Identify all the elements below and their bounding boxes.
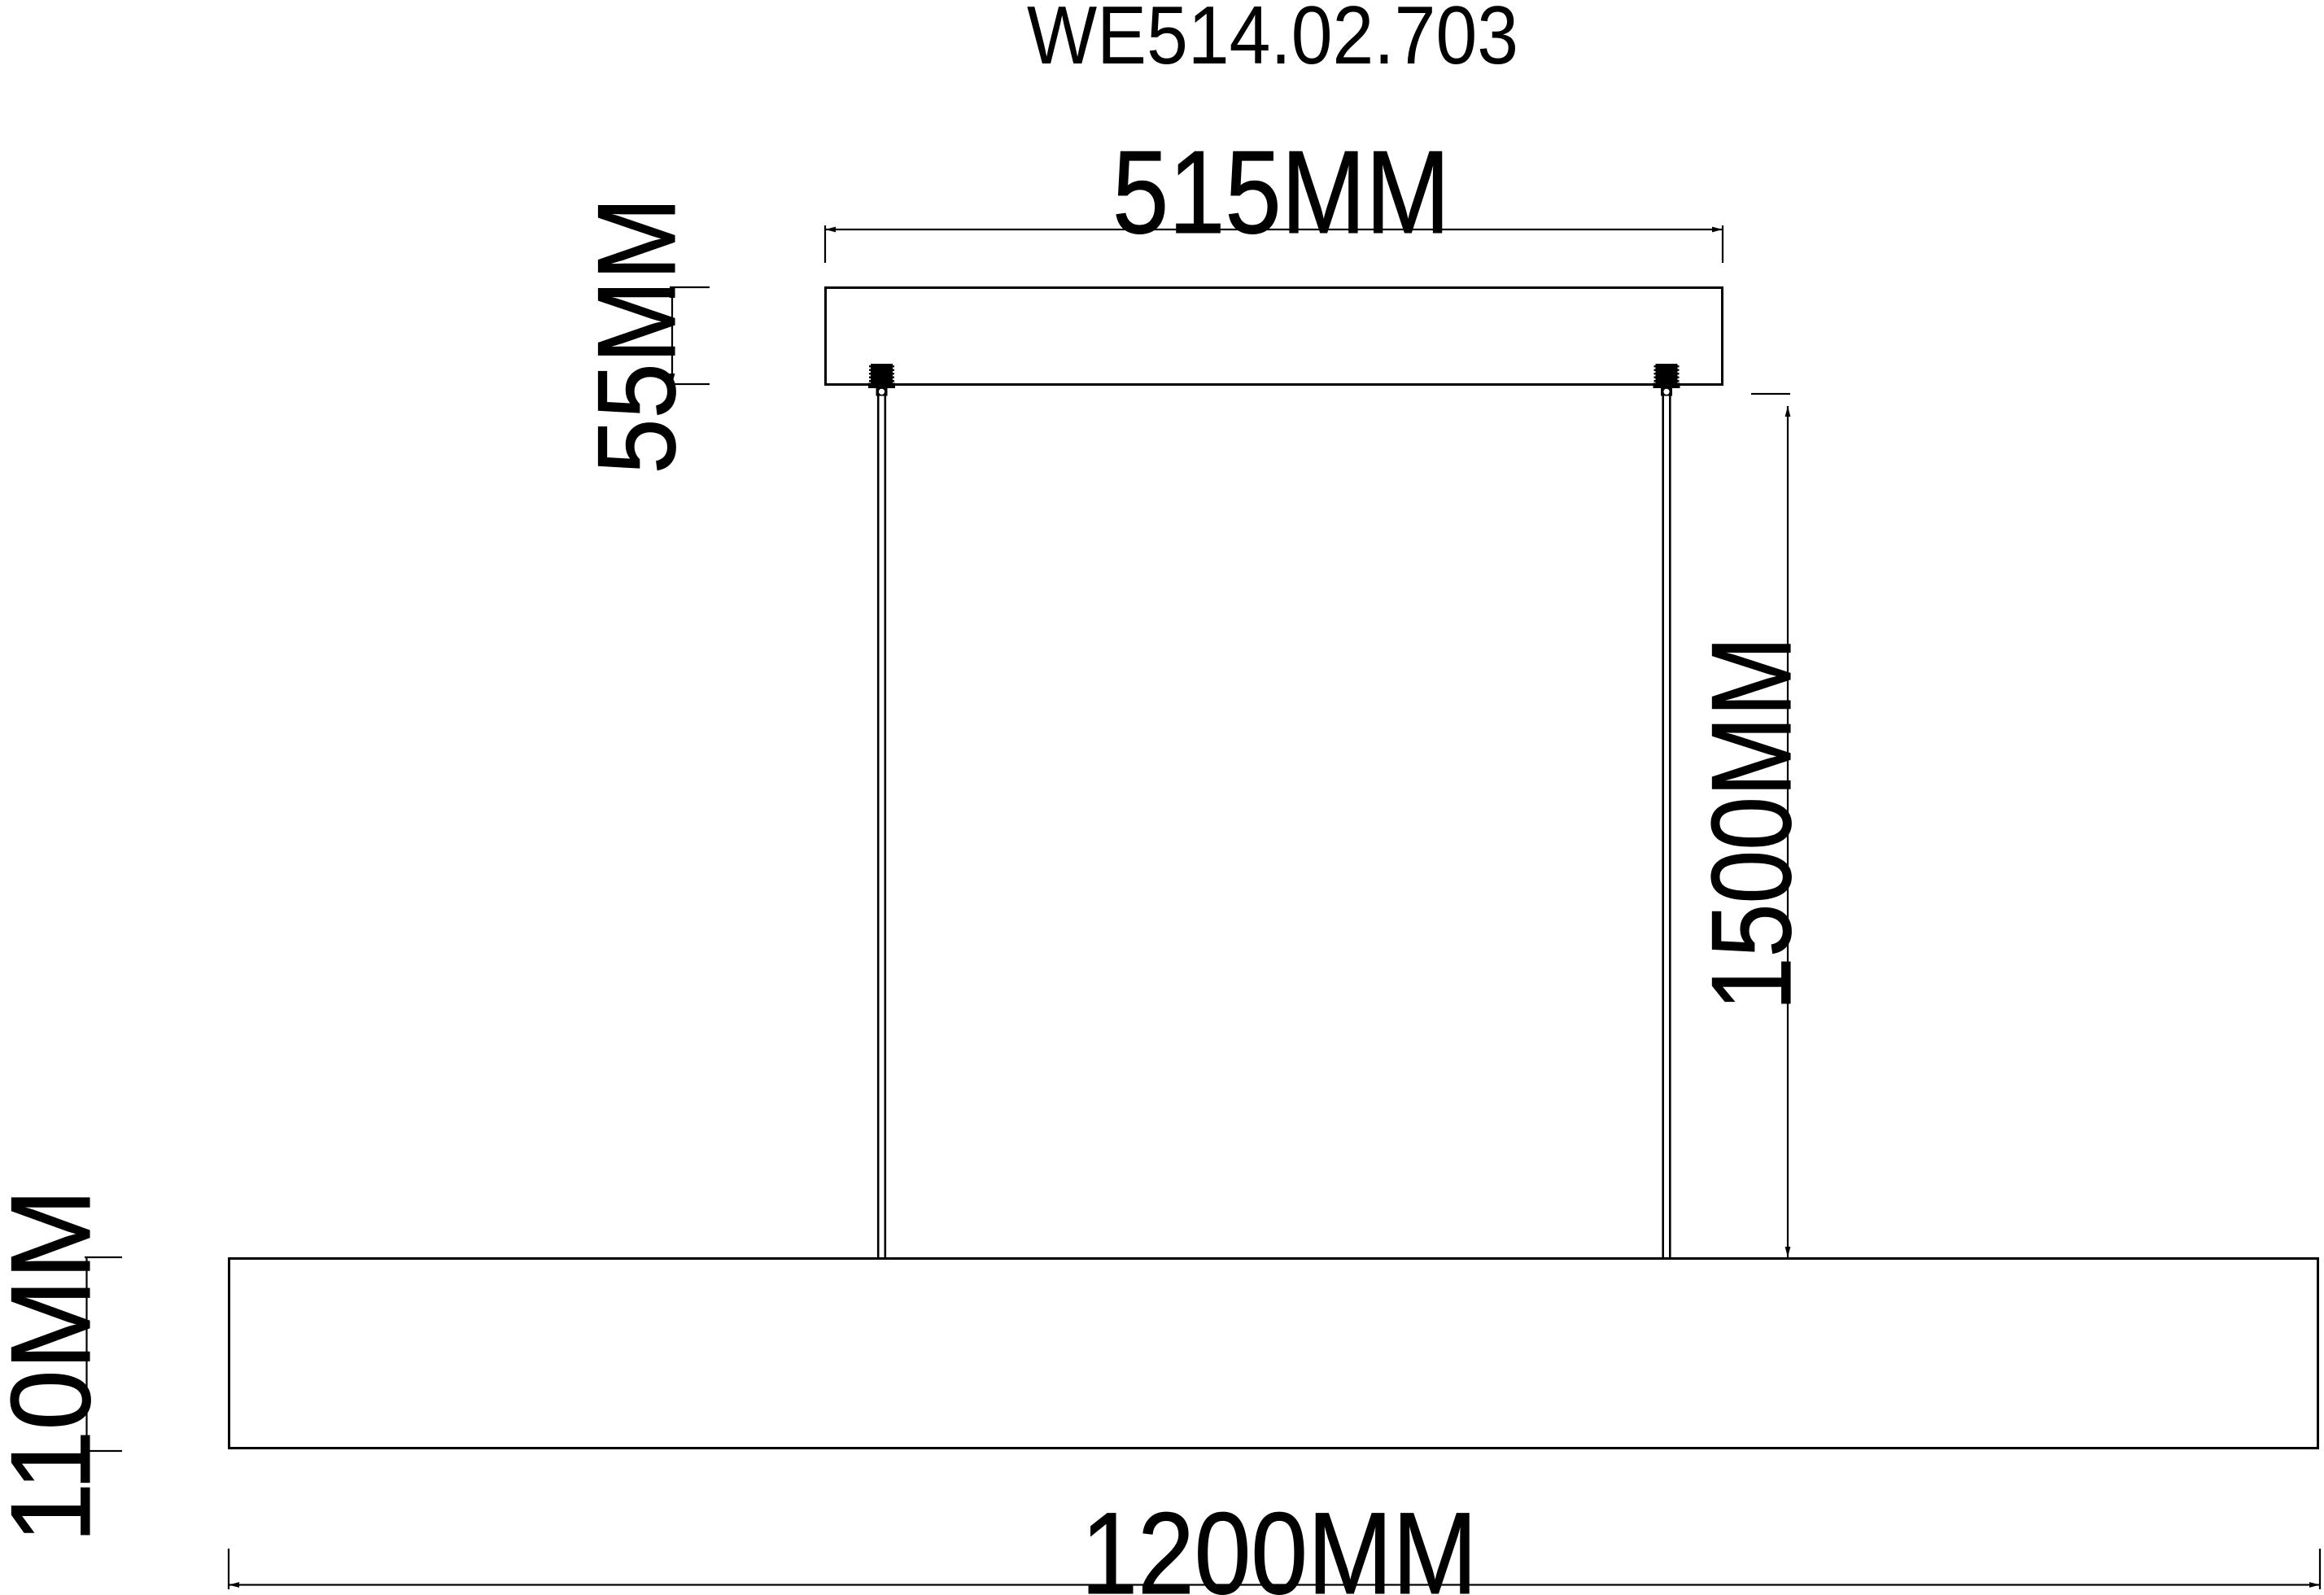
- svg-text:1500MM: 1500MM: [1688, 636, 1815, 1011]
- svg-text:110MM: 110MM: [0, 1189, 114, 1543]
- svg-text:515MM: 515MM: [1112, 126, 1450, 258]
- svg-text:WE514.02.703: WE514.02.703: [1027, 0, 1518, 81]
- svg-text:1200MM: 1200MM: [1081, 1489, 1478, 1595]
- svg-text:55MM: 55MM: [574, 198, 698, 474]
